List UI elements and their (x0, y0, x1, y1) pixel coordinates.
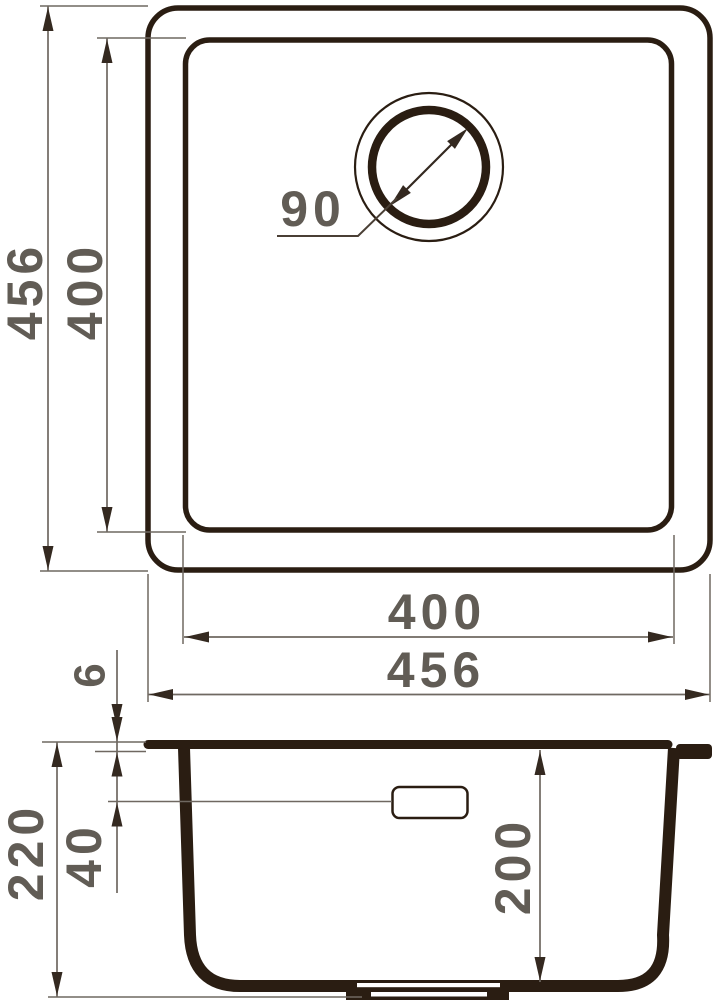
sink-dimension-drawing: 90 456 400 400 456 (0, 0, 714, 1006)
arrowhead-bottom-outer-left (149, 689, 173, 700)
drawing-canvas: 90 456 400 400 456 (0, 0, 714, 1006)
arrowhead-rim-top (112, 717, 123, 741)
label-left-inner-400: 400 (57, 242, 113, 340)
arrowhead-left-inner-top (102, 39, 113, 63)
overflow-opening (393, 787, 468, 818)
arrowhead-overflow-level (112, 803, 123, 827)
label-left-outer-456: 456 (0, 242, 53, 340)
drain-diameter-label: 90 (280, 181, 346, 237)
section-right-flange (676, 744, 712, 759)
drain-flange-slot (371, 992, 487, 997)
label-rim-thickness-6: 6 (66, 660, 115, 687)
label-overflow-offset-40: 40 (56, 822, 112, 888)
arrowhead-left-outer-top (43, 7, 54, 31)
label-bowl-depth-200: 200 (485, 817, 541, 915)
arrowhead-left-inner-bottom (102, 507, 113, 531)
arrowhead-bottom-outer-right (685, 689, 709, 700)
arrowhead-rim-bottom (112, 753, 123, 777)
plan-view: 90 456 400 400 456 (0, 6, 710, 702)
arrowhead-total-depth-bottom (52, 972, 63, 996)
section-bowl-profile (184, 748, 674, 986)
arrowhead-total-depth-top (52, 743, 63, 767)
section-view: 220 6 40 200 (0, 650, 712, 1000)
drain-recess-slot (357, 983, 500, 987)
arrowhead-bowl-depth-bottom (535, 957, 546, 981)
label-total-depth-220: 220 (0, 803, 54, 901)
label-bottom-inner-400: 400 (388, 584, 486, 640)
arrowhead-bowl-depth-top (535, 751, 546, 775)
label-bottom-outer-456: 456 (387, 642, 485, 698)
arrowhead-bottom-inner-left (185, 632, 209, 643)
arrowhead-bottom-inner-right (648, 632, 672, 643)
arrowhead-left-outer-bottom (43, 546, 54, 570)
